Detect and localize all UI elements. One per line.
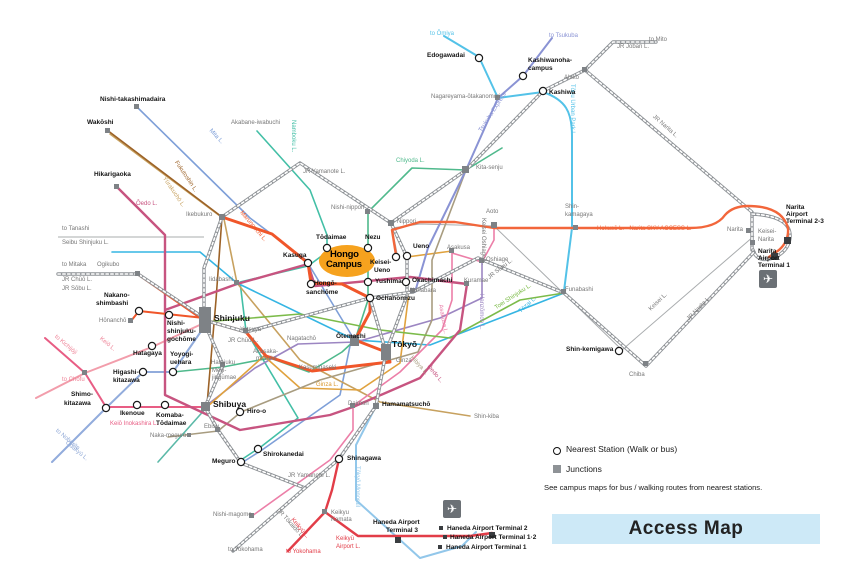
station-label-iidabashi: Iidabashi [209,277,233,284]
line-jr-narita-north [585,70,752,250]
junction-haneda-terminal3 [395,537,401,543]
station-label-nishi-shinjuku-1: Nishi- [167,320,185,327]
station-circle-hatagaya [148,342,155,349]
station-label-shin-kamagaya-1: Shin- [565,204,579,211]
station-label-yotsuya: Yotsuya [240,327,261,334]
station-label-wakoshi: Wakōshi [87,119,114,126]
station-label-shibuya: Shibuya [213,400,246,410]
station-label-hongo-sanchome-2: sanchōme [306,289,338,296]
airport-label-haneda-t12: Haneda Airport Terminal 1·2 [450,534,536,541]
station-label-nishi-shinjuku-2: shinjuku- [167,328,196,335]
station-label-keisei-narita-2: Narita [758,237,774,244]
station-label-akabane-iwabuchi: Akabane-iwabuchi [231,120,280,127]
station-label-kashiwa: Kashiwa [549,89,575,96]
station-label-otemachi: Ōtemachi [336,333,366,340]
narita-airplane-icon: ✈ [759,270,777,288]
station-circle-yoyogi-uehara [169,368,176,375]
station-label-aoto: Aoto [486,209,498,216]
junction-nippori [388,220,394,226]
line-label-seibu-shinjuku: Seibu Shinjuku L. [62,240,109,247]
line-label-ginza: Ginza L. [316,382,338,389]
station-label-yoyogi-2: uehara [170,359,191,366]
access-map-title: Access Map [629,518,744,540]
station-label-nakano-shimbashi-2: shimbashi [96,300,128,307]
station-label-shimo-kitazawa-1: Shimo- [71,391,93,398]
direction-label-yokohama-jr: to Yokohama [228,547,263,554]
station-label-shinjuku: Shinjuku [214,314,250,324]
station-label-akihabara: Akihabara [409,288,436,295]
direction-label-omiya: to Ōmiya [430,31,454,38]
junction-aoto [491,222,497,228]
station-label-todaimae: Tōdaimae [316,234,346,241]
line-label-hokuso-sky-access: Hokusō L. · Narita SKY ACCESS L. [597,226,692,233]
station-label-kuramae: Kuramae [464,278,488,285]
station-label-meiji-2: jingūmae [212,375,236,382]
station-label-hiro-o: Hiro-o [247,408,266,415]
station-label-oshiage: Oshiage [486,257,508,264]
legend-junction-icon [553,465,561,473]
station-label-kashiwanoha-1: Kashiwanoha- [528,57,572,64]
junction-chiba [643,361,648,366]
station-circle-shinagawa [335,455,342,462]
station-circle-edogawadai [475,54,482,61]
junction-narita [746,228,751,233]
station-circle-meguro [237,458,244,465]
access-map-canvas: to Ōmiya to Tsukuba to Mito to Tanashi t… [0,0,842,573]
line-label-jr-chuo-west: JR Chūō L. [62,277,92,284]
junction-wakoshi [105,128,110,133]
legend-nearest-station-icon [553,447,561,455]
direction-label-mito: to Mito [649,37,667,44]
station-label-daimon: Daimon [348,401,369,408]
junction-hikarigaoka [114,184,119,189]
station-label-shirokanedai: Shirokanedai [263,451,304,458]
station-label-kasumigaseki: Kasumigaseki [299,365,336,372]
station-label-ebisu: Ebisu [204,424,219,431]
station-circle-shimo-kitazawa [102,404,109,411]
junction-keikyu-kamata [322,509,327,514]
station-label-shimo-kitazawa-2: kitazawa [64,400,91,407]
marker-haneda-t1 [438,545,442,549]
airport-label-haneda-t3-1: Haneda Airport [373,519,420,526]
station-label-ikebukuro: Ikebukuro [186,212,212,219]
station-label-nishi-shinjuku-3: gochōme [167,336,196,343]
station-label-meiji-1: Meiji- [212,368,226,375]
station-label-chiba: Chiba [629,372,645,379]
station-label-higashi-kitazawa-2: kitazawa [113,377,140,384]
direction-label-tsukuba: to Tsukuba [549,33,578,40]
line-jr-joban-hatch [391,42,656,223]
station-label-hikarigaoka: Hikarigaoka [94,171,131,178]
station-label-shin-kiba: Shin-kiba [474,414,499,421]
line-label-keikyu-airport-2: Airport L. [336,544,360,551]
station-label-shin-kamagaya-2: kamagaya [565,212,593,219]
station-label-nippori: Nippori [397,219,416,226]
legend-note: See campus maps for bus / walking routes… [544,483,762,492]
junction-ogikubo [135,271,140,276]
junction-keisei-narita [750,240,755,245]
station-label-hatagaya: Hatagaya [133,350,162,357]
station-label-abiko: Abiko [564,75,579,82]
junction-meidaimae [82,370,87,375]
airport-label-narita-t23-3: Terminal 2-3 [786,218,824,225]
station-label-ueno: Ueno [413,243,429,250]
legend-nearest-station-label: Nearest Station (Walk or bus) [566,444,677,454]
junction-abiko [582,67,587,72]
line-label-oedo-nw: Ōedo L. [136,201,157,208]
junction-ikebukuro [219,214,225,220]
junction-honancho [128,318,133,323]
station-label-meguro: Meguro [212,458,235,465]
line-label-jr-yamanote-south: JR Yamanote L. [288,473,330,480]
station-circle-nakano-shimbashi [135,307,142,314]
station-label-komaba-2: Tōdaimae [156,420,186,427]
junction-nishi-takashimadaira [134,104,139,109]
marker-haneda-t12 [443,535,447,539]
junction-shin-kamagaya [573,225,578,230]
station-label-keikyu-kamata-2: Kamata [331,517,352,524]
station-circle-okachimachi [402,278,409,285]
station-circle-nishi-shinjuku-gochome [165,311,172,318]
station-label-akasaka-2: mitsuke [256,356,277,363]
junction-hamamatsucho [373,403,379,409]
station-label-nishi-nippori: Nishi-nippori [331,205,364,212]
station-label-ogikubo: Ogikubo [97,262,119,269]
station-label-harajuku: Harajuku [211,360,235,367]
line-label-hanzomon: Hanzōmon L. [477,294,484,330]
station-circle-shin-kemigawa [615,347,622,354]
haneda-airplane-icon: ✈ [443,500,461,518]
marker-haneda-t2 [439,526,443,530]
station-label-keisei-narita-1: Keisei- [758,229,776,236]
station-circle-komaba-todaimae [161,401,168,408]
station-label-higashi-kitazawa-1: Higashi- [113,369,139,376]
junction-nishi-nippori [365,209,370,214]
station-label-nishi-magome: Nishi-magome [213,512,252,519]
direction-label-yokohama-keikyu: to Yokohama [286,549,321,556]
station-label-komaba-1: Komaba- [156,412,184,419]
station-circle-nezu [364,244,371,251]
junction-tokyo [381,344,391,360]
station-label-funabashi: Funabashi [565,287,593,294]
station-circle-keisei-ueno [392,253,399,260]
line-tobu-urban-park [444,36,572,291]
station-circle-shirokanedai [254,445,261,452]
line-label-jr-sobu-west: JR Sōbu L. [62,286,92,293]
station-circle-ueno [403,252,410,259]
station-label-hamamatsucho: Hamamatsuchō [382,401,430,408]
station-label-yushima: Yushima [375,278,402,285]
station-label-narita: Narita [727,227,743,234]
station-label-hongo-sanchome-1: Hongō- [314,280,337,287]
station-label-tokyo: Tōkyō [392,340,417,350]
station-label-naka-meguro: Naka-meguro [150,433,186,440]
station-label-keikyu-kamata-1: Keikyu [331,510,349,517]
line-label-tokyo-monorail: Tōkyō Monorail [353,466,360,507]
station-label-edogawadai: Edogawadai [427,52,465,59]
line-label-jr-yamanote-north: JR Yamanote L. [303,169,345,176]
station-circle-kashiwanoha-campus [519,72,526,79]
station-label-ikenoue: Ikenoue [120,410,145,417]
station-circle-kasuga [304,259,311,266]
station-circle-ochanomizu [366,294,373,301]
station-label-kashiwanoha-2: campus [528,65,553,72]
station-label-shinagawa: Shinagawa [347,455,381,462]
station-label-keisei-ueno-1: Keisei- [370,259,391,266]
line-label-keikyu-airport-1: Keikyū [336,536,354,543]
station-label-akasaka-1: Akasaka- [253,349,278,356]
station-circle-kashiwa [539,87,546,94]
hongo-campus-label-2: Campus [326,259,362,270]
legend-junctions-label: Junctions [566,464,602,474]
direction-label-chofu: to Chōfu [62,377,85,384]
direction-label-tanashi: to Tanashi [62,226,89,233]
junction-shinjuku [199,307,211,333]
line-label-keio-inokashira: Keiō Inokashira L. [110,421,158,428]
station-label-yoyogi-1: Yoyogi- [170,351,193,358]
station-label-nezu: Nezu [365,234,381,241]
line-label-jr-chuo-center: JR Chūō L. [228,338,258,345]
station-label-kasuga: Kasuga [283,252,306,259]
junction-shibuya [201,402,210,411]
station-circle-higashi-kitazawa [139,368,146,375]
airport-label-haneda-t2: Haneda Airport Terminal 2 [447,525,528,532]
direction-label-mitaka: to Mitaka [62,262,86,269]
airport-label-haneda-t3-2: Terminal 3 [386,527,418,534]
station-label-nagareyama: Nagareyama-ōtakanomori [431,94,500,101]
station-label-okachimachi: Okachimachi [412,277,452,284]
station-circle-yushima [364,278,371,285]
station-label-honancho: Hōnanchō [99,318,126,325]
station-label-nakano-shimbashi-1: Nakano- [104,292,130,299]
station-label-ochanomizu: Ochanomizu [376,295,415,302]
access-map-title-box: Access Map [552,514,820,544]
station-label-nagatacho: Nagatachō [287,336,316,343]
station-label-ginza: Ginza [396,358,412,365]
station-label-kita-senju: Kita-senju [476,165,503,172]
airport-label-narita-t1-3: Terminal 1 [758,262,790,269]
line-label-chiyoda: Chiyoda L. [396,158,425,165]
junction-kita-senju [462,166,469,173]
station-label-keisei-ueno-2: Ueno [374,267,390,274]
line-label-jr-joban: JR Joban L. [617,44,649,51]
junction-narita-terminal23 [784,237,791,244]
junction-naka-meguro [187,433,191,437]
line-jr-narita-north-hatch [585,70,752,250]
station-label-nishi-takashimadaira: Nishi-takashimadaira [100,96,165,103]
station-label-asakusa: Asakusa [447,245,470,252]
station-label-shin-kemigawa: Shin-kemigawa [566,346,613,353]
line-label-keisei-oshiage: Keisei Oshiage L. [479,218,486,265]
junction-iidabashi [234,280,239,285]
line-label-namboku: Namboku L. [289,120,296,152]
airport-label-haneda-t1: Haneda Airport Terminal 1 [446,544,527,551]
station-circle-ikenoue [133,401,140,408]
